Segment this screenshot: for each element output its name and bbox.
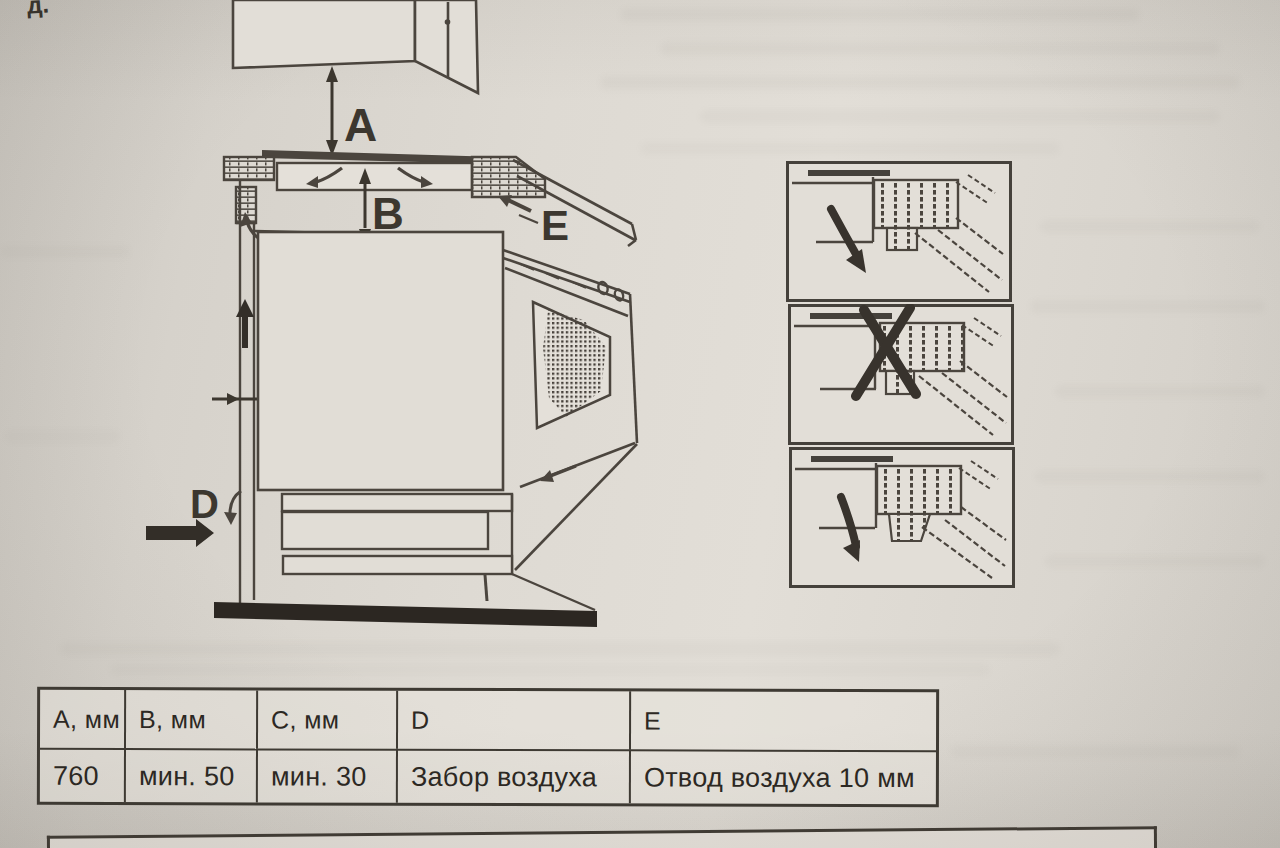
bleed-through-texture	[1035, 470, 1265, 483]
manual-page-photo: д. A	[0, 0, 1280, 848]
left-wall-section	[224, 157, 274, 180]
vent-detail-correct-top	[786, 161, 1012, 302]
label-a: A	[344, 99, 377, 151]
control-knob	[597, 281, 609, 296]
table-data-cell: Забор воздуха	[396, 749, 629, 804]
cooker-plinth-drawer	[282, 494, 595, 610]
bleed-through-texture	[1030, 300, 1265, 313]
table-data-cell: мин. 30	[256, 748, 396, 802]
table-data-cell: 760	[40, 748, 124, 802]
bleed-through-texture	[1055, 385, 1265, 398]
cutoff-text-fragment: д.	[26, 0, 50, 20]
vent-detail-incorrect	[788, 304, 1014, 445]
wall-airflow-arrow-shaft	[242, 314, 248, 348]
table-data-cell: мин. 50	[124, 748, 256, 802]
next-section-box-partial	[47, 826, 1157, 848]
table-header-cell: А, мм	[40, 690, 124, 748]
under-hob-gap	[277, 163, 472, 190]
table-header-cell: D	[396, 691, 629, 750]
table-header-cell: E	[629, 691, 936, 750]
cooker-side-panel	[258, 232, 503, 490]
installation-clearance-diagram: A B	[130, 0, 675, 645]
vent-grille-block	[877, 466, 961, 514]
table-header-cell: В, мм	[124, 690, 256, 748]
shelf-bar	[808, 170, 890, 176]
bleed-through-texture	[5, 430, 120, 443]
bleed-through-texture	[110, 663, 990, 676]
bleed-through-texture	[700, 110, 1220, 123]
vent-grille-block	[874, 180, 958, 228]
air-outlet-arrow-e	[506, 199, 531, 211]
dimension-arrow-a	[326, 66, 338, 156]
bleed-through-texture	[640, 142, 1060, 155]
bleed-through-texture	[1040, 220, 1260, 233]
label-b: B	[372, 189, 404, 238]
bleed-through-texture	[660, 42, 1220, 55]
right-wall-section	[472, 157, 545, 197]
bleed-through-texture	[620, 8, 1140, 21]
bleed-through-texture	[1045, 555, 1265, 568]
shelf-bar	[810, 313, 892, 319]
cabinet-handle-dot	[445, 19, 451, 25]
table-data-cell: Отвод воздуха 10 мм	[629, 749, 936, 804]
table-header-cell: С, мм	[256, 690, 396, 748]
vent-detail-correct-bottom	[789, 447, 1015, 588]
bleed-through-texture	[0, 245, 130, 258]
vent-duct-block	[887, 228, 917, 250]
shelf-bar	[811, 456, 893, 462]
clearance-table: А, мм В, мм С, мм D E 760 мин. 50 мин. 3…	[37, 687, 939, 807]
wall-cabinet	[233, 0, 478, 93]
wall-airflow-arrow-head	[236, 299, 254, 317]
label-e: E	[541, 202, 569, 249]
floor-line	[214, 602, 597, 627]
label-d: D	[190, 482, 219, 526]
bleed-through-texture	[600, 76, 1240, 89]
bleed-through-texture	[950, 745, 1240, 758]
